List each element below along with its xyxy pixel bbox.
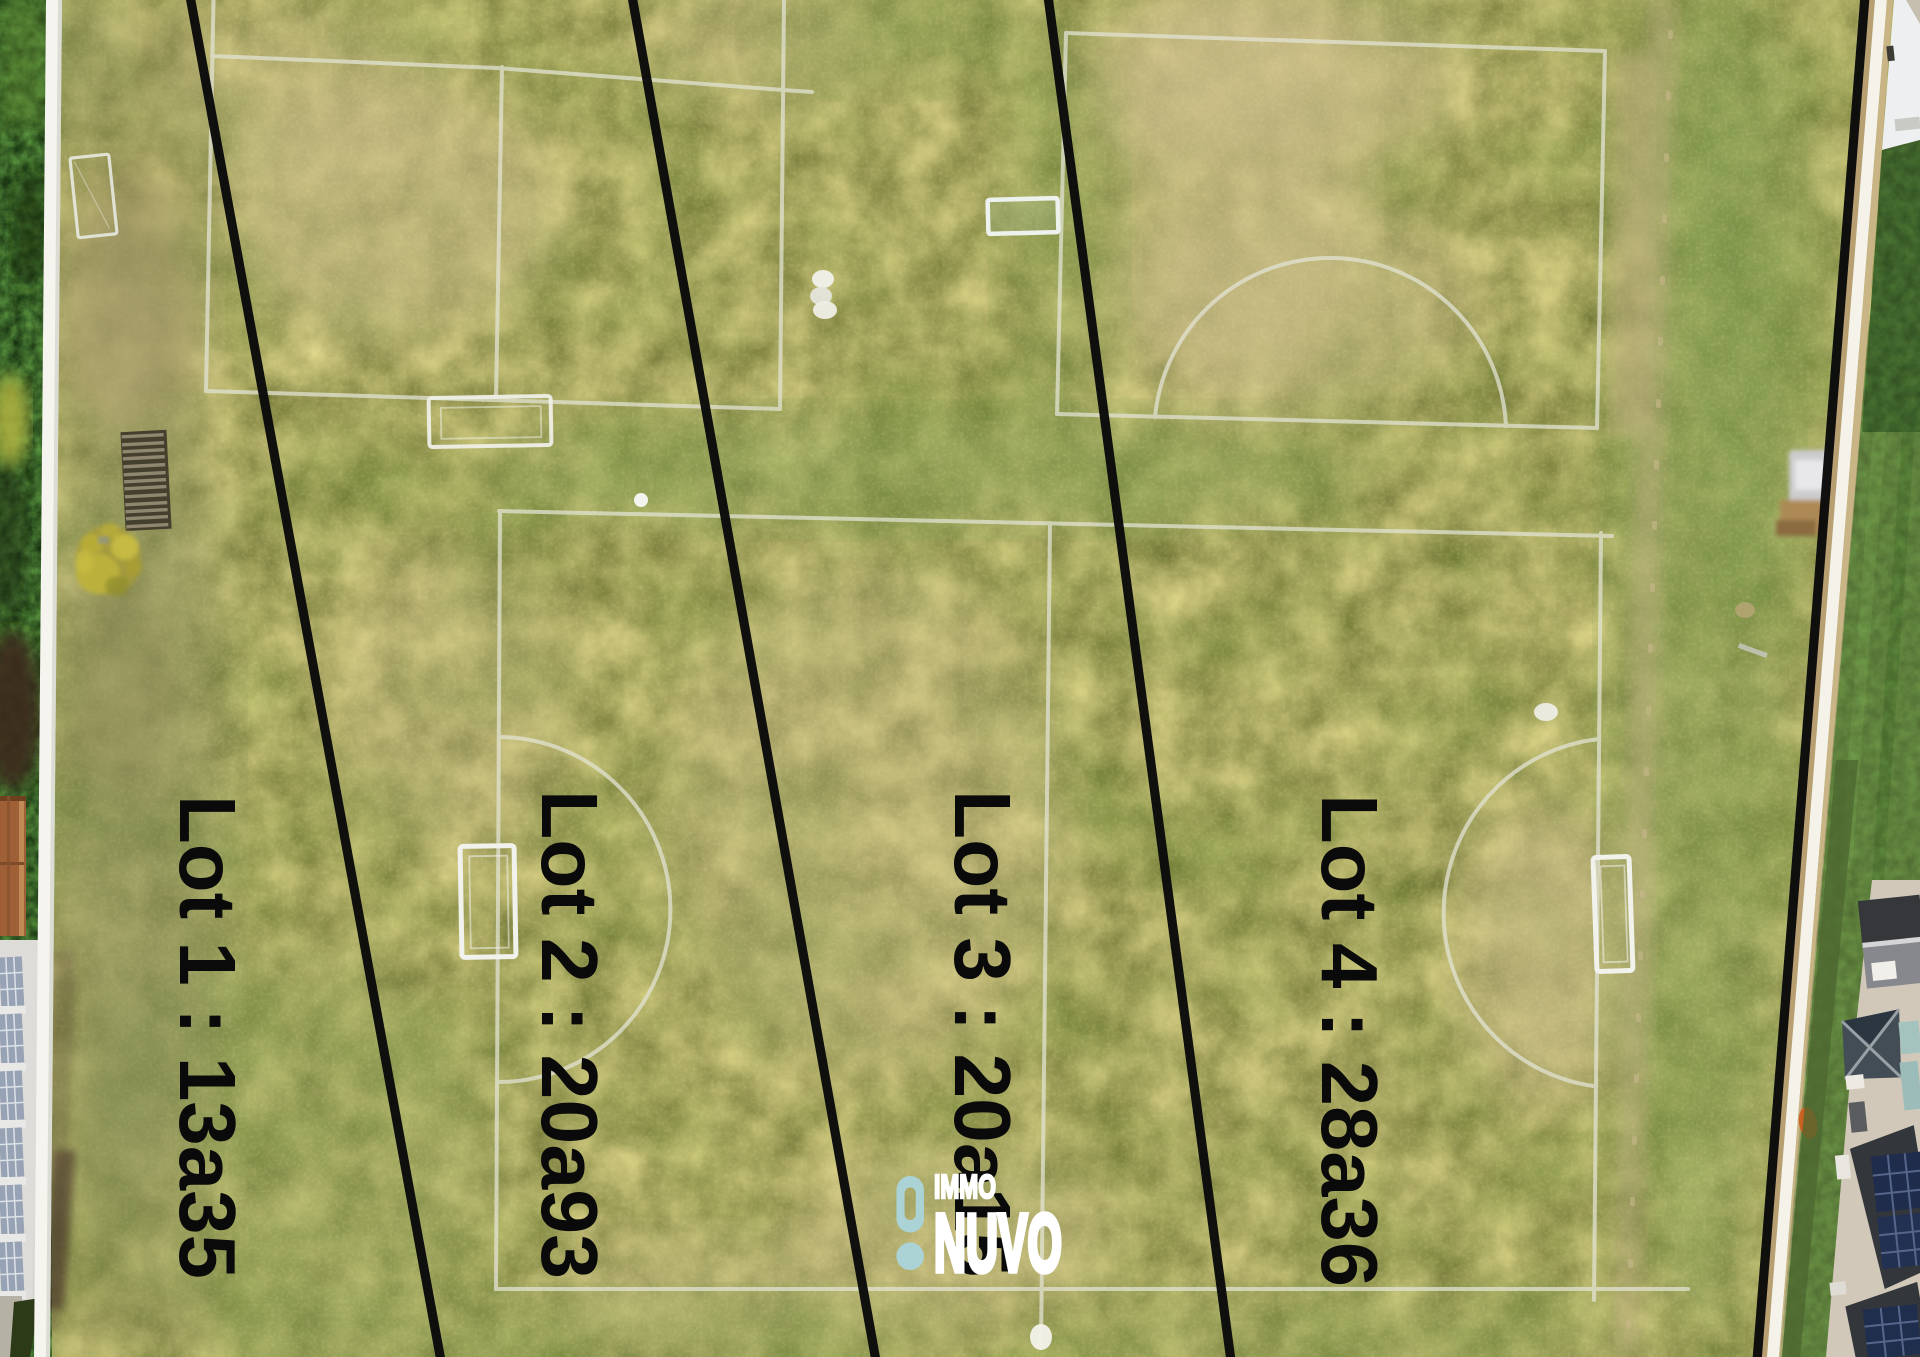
svg-text:Lot 2 : 20a93: Lot 2 : 20a93 bbox=[525, 790, 614, 1279]
svg-text:Lot 4 : 28a36: Lot 4 : 28a36 bbox=[1305, 794, 1394, 1287]
svg-text:Lot 1 : 13a35: Lot 1 : 13a35 bbox=[163, 795, 252, 1279]
svg-text:NUVO: NUVO bbox=[934, 1198, 1062, 1289]
